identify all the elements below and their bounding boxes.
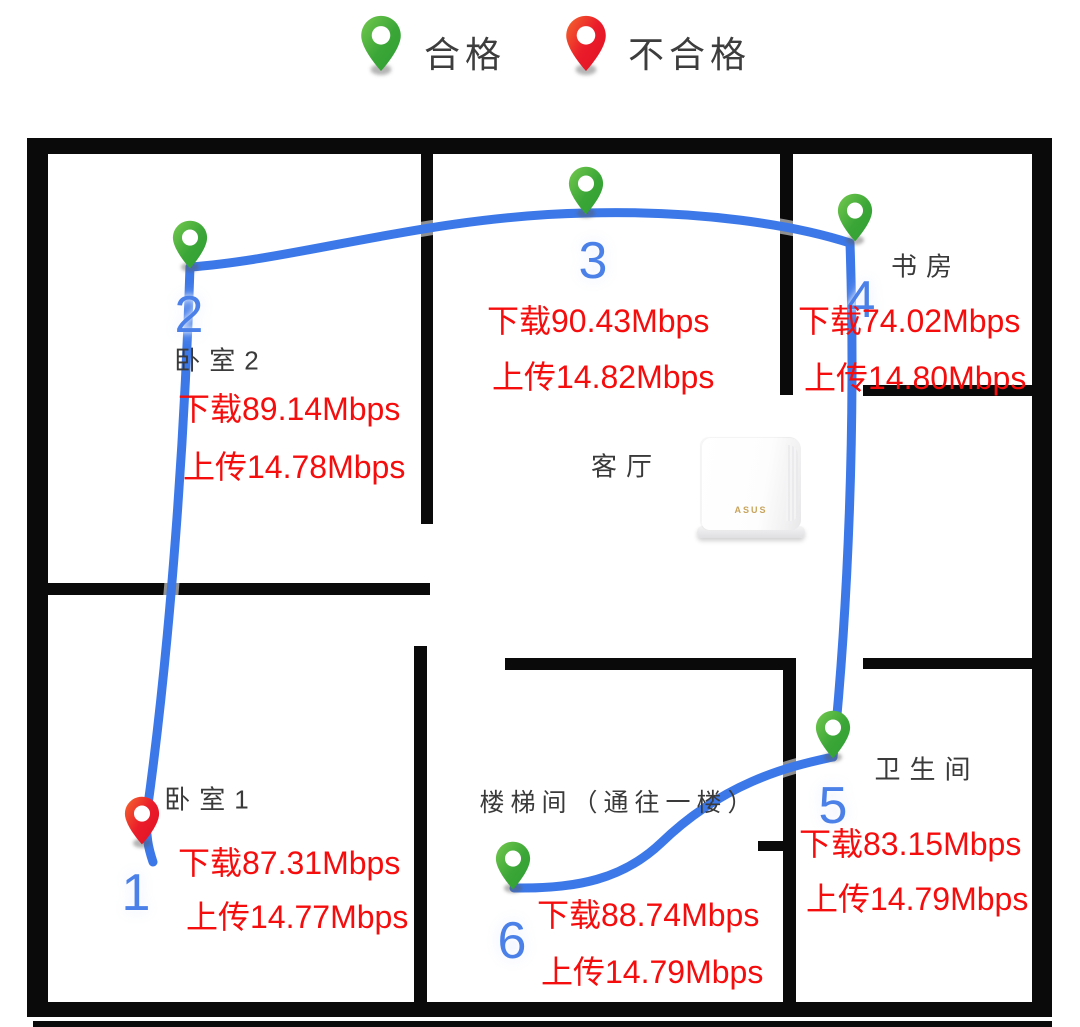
wall-bedroom2-right [421,152,433,524]
wall-outer-bottom-edge [33,1021,1052,1027]
speed-download-2: 下载89.14Mbps [178,384,400,430]
room-label-living: 客厅 [591,447,661,484]
speed-download-3: 下载90.43Mbps [487,296,709,342]
map-pin-2-pass-icon [171,219,209,272]
speed-download-5: 下载83.15Mbps [799,819,1021,865]
room-label-bedroom2: 卧室2 [174,341,267,378]
room-label-bathroom: 卫生间 [874,750,979,787]
wifi-test-route-path [0,0,1080,1027]
point-number-3: 3 [579,231,608,291]
speed-download-4: 下载74.02Mbps [798,296,1020,342]
room-label-study: 书房 [891,247,961,284]
map-pin-4-pass-icon [836,192,874,245]
legend-fail-pin-icon [564,14,608,75]
wall-outer-left [27,138,48,1017]
speed-upload-6: 上传14.79Mbps [541,947,763,993]
point-number-6: 6 [498,911,527,971]
router-brand-logo: ASUS [701,505,801,515]
point-number-2: 2 [175,285,204,345]
wall-bathroom-stub [758,841,796,851]
legend-pass-pin-icon [359,14,403,75]
wall-outer-right [1032,138,1052,1017]
wall-outer-top [27,138,1050,154]
room-label-bedroom1: 卧室1 [164,780,257,817]
speed-upload-3: 上传14.82Mbps [492,352,714,398]
map-pin-5-pass-icon [814,709,852,762]
speed-download-1: 下载87.31Mbps [178,838,400,884]
speed-upload-5: 上传14.79Mbps [806,874,1028,920]
speed-upload-2: 上传14.78Mbps [183,442,405,488]
wall-stairwell-top [505,658,795,670]
speed-download-6: 下载88.74Mbps [537,890,759,936]
wall-bedroom-divider [27,583,430,595]
wall-stairwell-right [783,658,796,1006]
room-label-stairwell: 楼梯间（通往一楼） [479,783,758,819]
map-pin-3-pass-icon [567,165,605,218]
legend-fail-label: 不合格 [628,26,751,78]
map-pin-6-pass-icon [494,840,532,893]
speed-upload-4: 上传14.80Mbps [804,353,1026,399]
map-pin-1-fail-icon [123,795,161,848]
legend-pass-label: 合格 [424,26,506,78]
wall-bathroom-top [863,658,1033,669]
wall-study-left [780,152,793,395]
wall-outer-bottom [27,1002,1052,1017]
speed-upload-1: 上传14.77Mbps [186,892,408,938]
wall-bedroom1-right [414,646,427,1006]
point-number-1: 1 [122,863,151,923]
